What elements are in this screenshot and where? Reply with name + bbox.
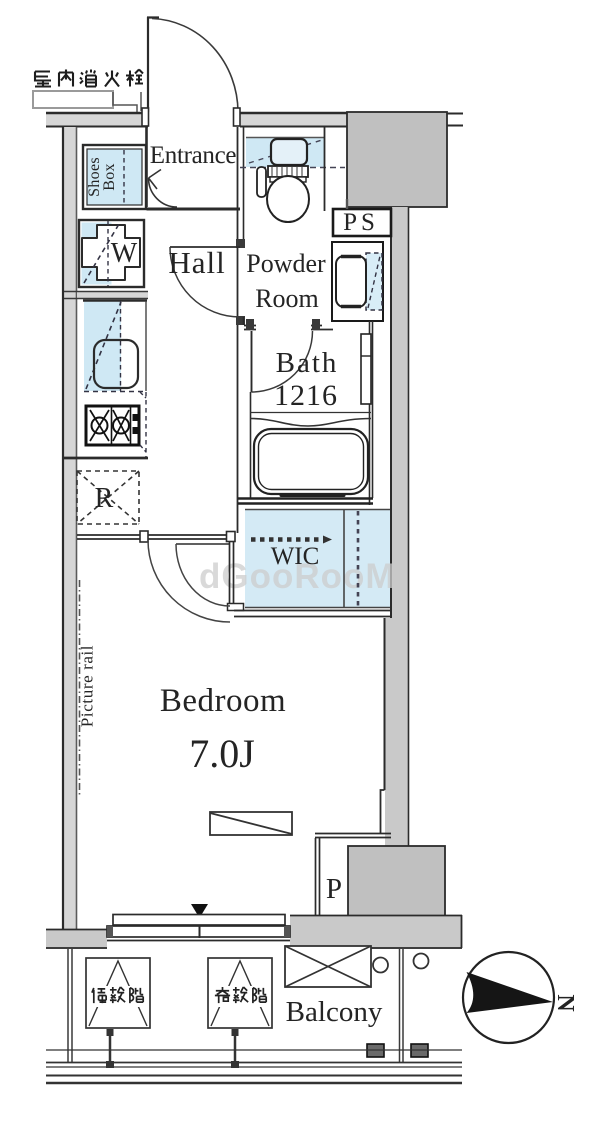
svg-text:Picture rail: Picture rail [78,645,97,727]
svg-text:W: W [111,238,138,269]
svg-text:Room: Room [255,284,319,313]
svg-text:P: P [326,873,342,905]
svg-text:1216: 1216 [274,379,338,412]
svg-text:7.0J: 7.0J [189,731,255,776]
svg-text:N: N [552,994,578,1012]
svg-text:Hall: Hall [168,245,225,280]
svg-text:Bath: Bath [276,347,339,379]
svg-text:Entrance: Entrance [150,142,237,169]
svg-text:Bedroom: Bedroom [160,683,286,719]
svg-text:Powder: Powder [246,249,326,278]
svg-text:PS: PS [343,209,379,236]
svg-text:R: R [95,483,114,514]
svg-text:WIC: WIC [271,543,320,570]
svg-text:Balcony: Balcony [286,996,383,1028]
